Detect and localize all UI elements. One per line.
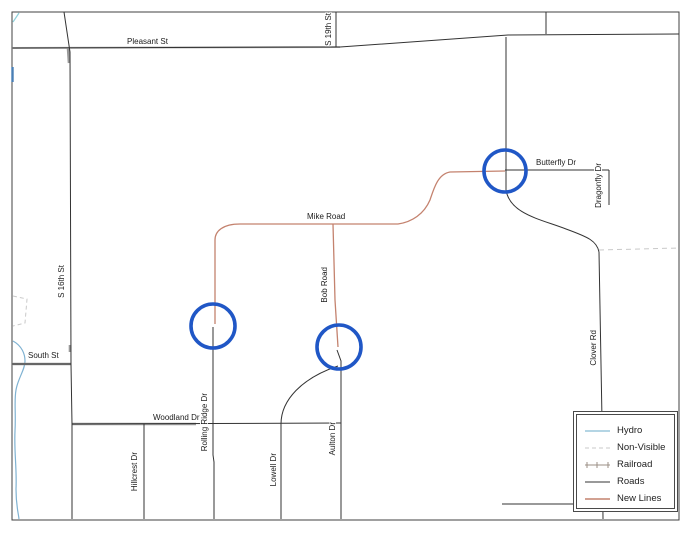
railroad-line-icon [584, 460, 611, 470]
street-label-mike-road: Mike Road [307, 212, 345, 222]
map-view: Pleasant St S 19th St S 16th St South St… [0, 0, 690, 534]
legend-label: Railroad [617, 459, 652, 470]
street-label-lowell-dr: Lowell Dr [269, 453, 279, 486]
non-visible-line-left [13, 296, 27, 326]
street-label-s-16th-st: S 16th St [57, 265, 67, 298]
legend-item-new-lines: New Lines [584, 490, 674, 507]
street-label-butterfly-dr: Butterfly Dr [536, 158, 576, 168]
legend-item-hydro: Hydro [584, 422, 674, 439]
legend-label: Non-Visible [617, 442, 665, 453]
legend-item-roads: Roads [584, 473, 674, 490]
hydro-line-icon [584, 426, 611, 436]
new-line-icon [584, 494, 611, 504]
street-label-s-19th-st: S 19th St [324, 13, 334, 46]
hydro-line-top-left [13, 13, 19, 22]
legend-label: New Lines [617, 493, 661, 504]
non-visible-line-right [599, 248, 679, 250]
new-line-bob-road [333, 224, 338, 347]
dashed-line-icon [584, 443, 611, 453]
legend-label: Roads [617, 476, 644, 487]
street-label-aulton-dr: Aulton Dr [328, 422, 338, 455]
street-label-hillcrest-dr: Hillcrest Dr [130, 452, 140, 491]
new-line-mike-road [215, 171, 505, 324]
street-label-woodland-dr: Woodland Dr [153, 413, 200, 423]
hydro-line-bottom-left [13, 341, 25, 519]
legend-inner-frame: Hydro Non-Visible Railroad [576, 414, 675, 509]
road-butterfly-curve [506, 190, 599, 252]
legend-item-railroad: Railroad [584, 456, 674, 473]
road-lowell-arc [281, 366, 338, 424]
legend: Hydro Non-Visible Railroad [573, 411, 678, 512]
road-pleasant-st [12, 34, 679, 48]
road-line-icon [584, 477, 611, 487]
street-label-rolling-ridge-dr: Rolling Ridge Dr [200, 393, 210, 451]
street-label-south-st: South St [28, 351, 59, 361]
street-label-pleasant-st: Pleasant St [127, 37, 168, 47]
legend-item-non-visible: Non-Visible [584, 439, 674, 456]
legend-label: Hydro [617, 425, 642, 436]
highlight-circle-bob-road [317, 325, 361, 369]
street-label-bob-road: Bob Road [320, 267, 330, 303]
street-label-clover-rd: Clover Rd [589, 330, 599, 366]
street-label-dragonfly-dr: Dragonfly Dr [594, 163, 604, 208]
